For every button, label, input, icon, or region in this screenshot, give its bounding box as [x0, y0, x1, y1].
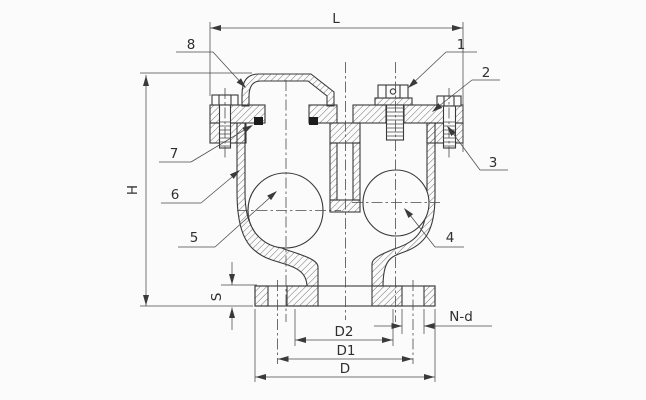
- callout-8-label: 8: [187, 37, 196, 53]
- dimension-S: S: [209, 262, 257, 330]
- callout-7-label: 7: [170, 146, 179, 162]
- bottom-flange-seg1: [255, 286, 268, 306]
- callout-3-label: 3: [489, 155, 498, 171]
- drawing-canvas: L H S D2 D1 D: [0, 0, 646, 400]
- dim-label-N-d: N-d: [449, 309, 473, 325]
- callout-2-label: 2: [482, 65, 491, 81]
- callout-2: 2: [430, 65, 500, 114]
- dim-label-D1: D1: [337, 343, 356, 359]
- dim-label-H: H: [125, 185, 141, 195]
- center-bolt-shank: [387, 105, 404, 140]
- small-float-ball: [363, 170, 429, 236]
- callout-1: 1: [406, 37, 477, 90]
- center-bolt-wire-hole: [390, 89, 395, 94]
- callout-8: 8: [176, 37, 248, 90]
- dimension-D2: D2: [295, 309, 393, 346]
- center-column-right-wall: [353, 143, 360, 200]
- dim-label-D: D: [340, 361, 350, 377]
- bonnet-dome: [242, 74, 334, 106]
- callout-4-label: 4: [446, 230, 455, 246]
- bottom-flange: [255, 286, 435, 306]
- valve-seat-block: [330, 123, 360, 143]
- dimension-N-d: N-d: [374, 309, 492, 334]
- bottom-flange-seg2: [287, 286, 318, 306]
- callout-5-label: 5: [190, 230, 199, 246]
- cover-plate-mid-right: [353, 105, 386, 123]
- callout-1-label: 1: [457, 37, 466, 53]
- center-column-left-wall: [330, 143, 337, 200]
- dim-label-L: L: [332, 11, 340, 27]
- bottom-flange-seg3: [372, 286, 402, 306]
- center-bolt-collar: [375, 98, 412, 105]
- bottom-flange-seg4: [424, 286, 435, 306]
- dim-label-S: S: [209, 293, 225, 302]
- dim-label-D2: D2: [335, 324, 354, 340]
- callout-6-label: 6: [171, 187, 180, 203]
- left-seat-seal: [254, 117, 263, 125]
- callout-6: 6: [161, 168, 242, 203]
- air-valve-technical-drawing: L H S D2 D1 D: [0, 0, 646, 400]
- right-seat-seal: [309, 117, 318, 125]
